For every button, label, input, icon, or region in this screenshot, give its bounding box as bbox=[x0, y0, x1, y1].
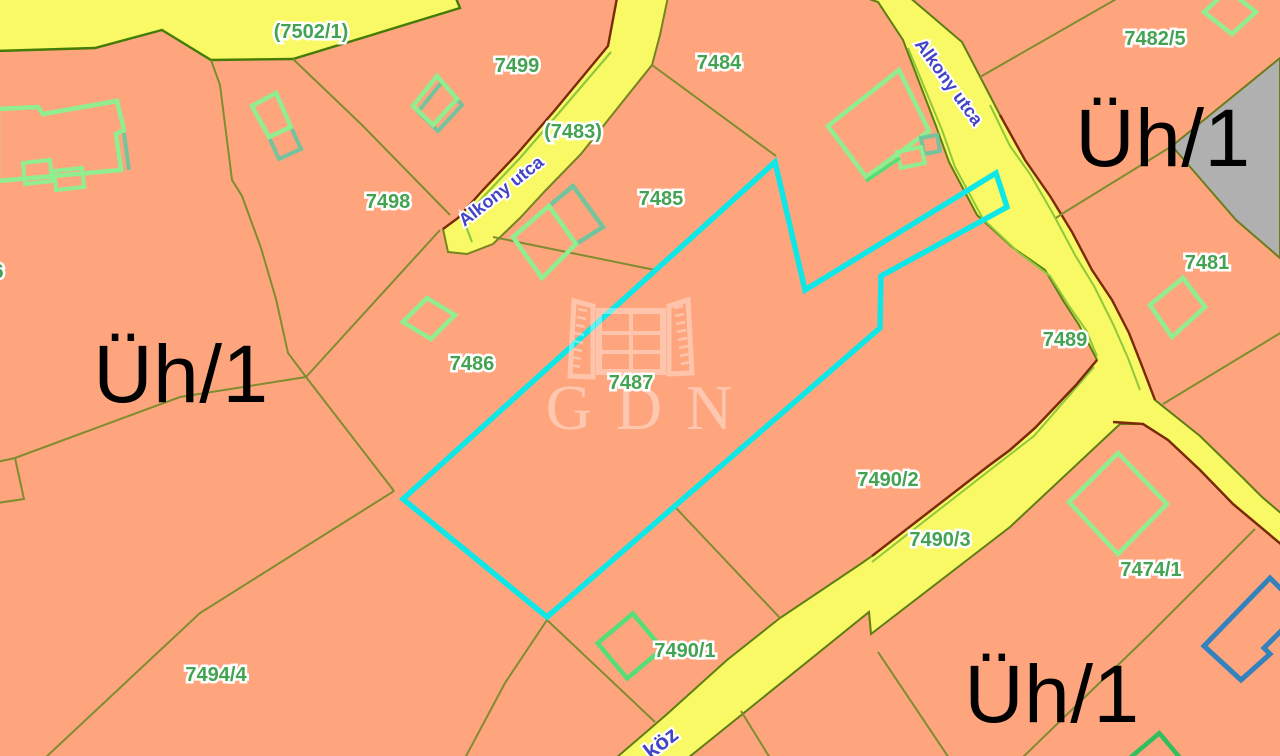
svg-text:7490/3: 7490/3 bbox=[909, 529, 970, 551]
svg-text:(7483): (7483) bbox=[544, 121, 602, 143]
svg-text:7484: 7484 bbox=[697, 52, 742, 74]
svg-text:Üh/1: Üh/1 bbox=[93, 329, 268, 420]
svg-text:7494/4: 7494/4 bbox=[185, 664, 247, 686]
svg-text:7486: 7486 bbox=[450, 353, 495, 375]
svg-text:7498: 7498 bbox=[366, 191, 411, 213]
svg-text:7474/1: 7474/1 bbox=[1120, 559, 1181, 581]
svg-text:7489: 7489 bbox=[1043, 329, 1088, 351]
svg-text:7485: 7485 bbox=[639, 188, 684, 210]
svg-text:7482/5: 7482/5 bbox=[1124, 28, 1185, 50]
svg-text:7490/2: 7490/2 bbox=[857, 469, 918, 491]
svg-text:(7502/1): (7502/1) bbox=[274, 21, 349, 43]
svg-text:7490/1: 7490/1 bbox=[654, 640, 715, 662]
svg-text:7487: 7487 bbox=[609, 372, 654, 394]
svg-text:7499: 7499 bbox=[495, 55, 540, 77]
svg-text:6: 6 bbox=[0, 261, 4, 283]
svg-text:7481: 7481 bbox=[1185, 252, 1230, 274]
svg-text:Üh/1: Üh/1 bbox=[964, 649, 1139, 740]
svg-text:Üh/1: Üh/1 bbox=[1075, 93, 1250, 184]
